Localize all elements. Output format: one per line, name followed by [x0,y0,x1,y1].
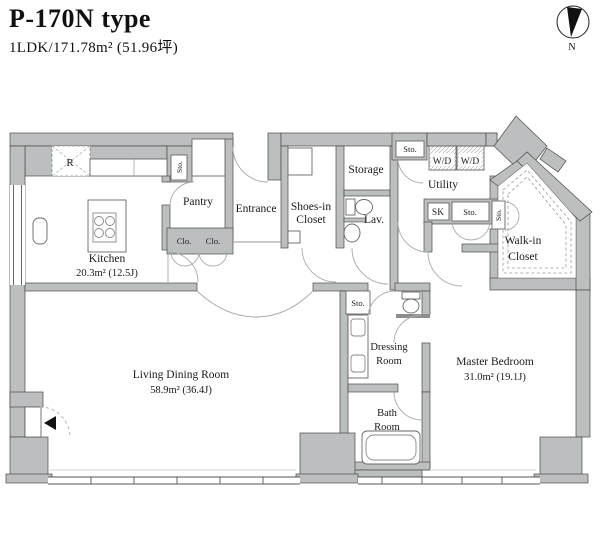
dressing-room-label-2: Room [376,356,402,367]
wic-label-2: Closet [508,251,538,263]
wic-label-1: Walk-in [505,235,542,247]
bath-room-label-1: Bath [377,408,398,419]
sto-top-label: Sto. [403,144,416,154]
dressing-washstand [348,315,368,378]
closet2-label: Clo. [206,236,220,246]
lavatory-basin [344,224,360,242]
lavatory-label: Lav. [364,214,384,226]
utility-label: Utility [428,179,458,191]
master-bedroom-label: Master Bedroom [456,356,534,368]
kitchen-island [88,200,126,252]
entrance-label: Entrance [236,203,277,215]
bath-room-label-2: Room [374,422,400,433]
living-dining-area-label: 58.9m² (36.4J) [150,385,212,396]
dressing-room-label-1: Dressing [370,342,408,353]
kitchen-area-label: 20.3m² (12.5J) [76,268,138,279]
shoes-shelf [288,148,312,175]
master-bedroom-area-label: 31.0m² (19.1J) [464,372,526,383]
floor-plan-page: P-170N type 1LDK/171.78m² (51.96坪) [0,0,600,557]
sto-wic-label: Sto. [494,209,503,221]
living-dining-label: Living Dining Room [133,369,230,381]
washer-dryer1-label: W/D [433,157,452,167]
north-label: N [568,42,575,53]
refrigerator-label: R [66,157,74,169]
bathtub [362,431,420,464]
shoes-bench [288,231,300,243]
lavatory-toilet [346,199,373,215]
kitchen-counter [90,159,167,176]
storage-label: Storage [348,164,383,176]
closet1-label: Clo. [177,236,191,246]
plan-area-subtitle: 1LDK/171.78m² (51.96坪) [9,36,178,57]
dressing-toilet [402,292,420,313]
plan-title: P-170N type [9,4,178,34]
north-indicator: N [557,6,589,53]
shoes-closet-label-1: Shoes-in [291,201,332,213]
shoes-closet-label-2: Closet [296,214,326,226]
sto-pantry-label: Sto. [175,161,184,173]
sto-utility-label: Sto. [463,207,476,217]
sink-label: SK [432,208,444,218]
sto-dressing-label: Sto. [351,298,364,308]
floor-plan-drawing: Kitchen 20.3m² (12.5J) Pantry Entrance S… [0,0,600,557]
duct-box [192,139,225,176]
north-arrow-icon [567,7,582,37]
pantry-label: Pantry [183,196,213,208]
evacuation-triangle [44,416,56,430]
plan-header: P-170N type 1LDK/171.78m² (51.96坪) [9,4,178,57]
kitchen-label: Kitchen [89,253,126,265]
window-column [33,218,47,244]
washer-dryer2-label: W/D [461,157,480,167]
